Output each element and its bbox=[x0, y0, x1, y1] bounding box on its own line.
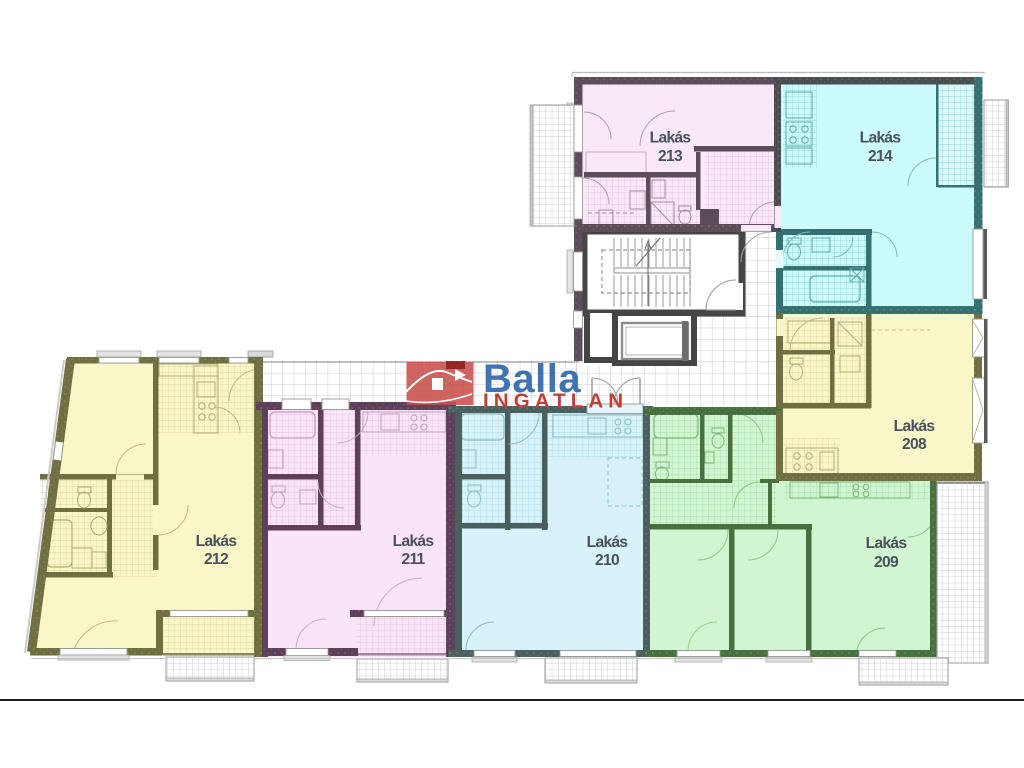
svg-text:213: 213 bbox=[658, 148, 683, 165]
svg-text:Lakás: Lakás bbox=[650, 130, 692, 147]
svg-text:214: 214 bbox=[868, 148, 893, 165]
svg-text:Lakás: Lakás bbox=[393, 533, 435, 550]
svg-text:212: 212 bbox=[204, 551, 229, 568]
svg-text:210: 210 bbox=[595, 552, 620, 569]
svg-text:209: 209 bbox=[874, 554, 899, 571]
svg-text:211: 211 bbox=[401, 551, 425, 568]
svg-text:Lakás: Lakás bbox=[587, 534, 629, 551]
svg-text:INGATLAN: INGATLAN bbox=[483, 390, 628, 413]
svg-text:Lakás: Lakás bbox=[196, 533, 238, 550]
svg-text:Lakás: Lakás bbox=[866, 535, 908, 552]
svg-text:208: 208 bbox=[902, 436, 927, 453]
svg-text:Lakás: Lakás bbox=[860, 130, 902, 147]
svg-text:Lakás: Lakás bbox=[894, 418, 936, 435]
